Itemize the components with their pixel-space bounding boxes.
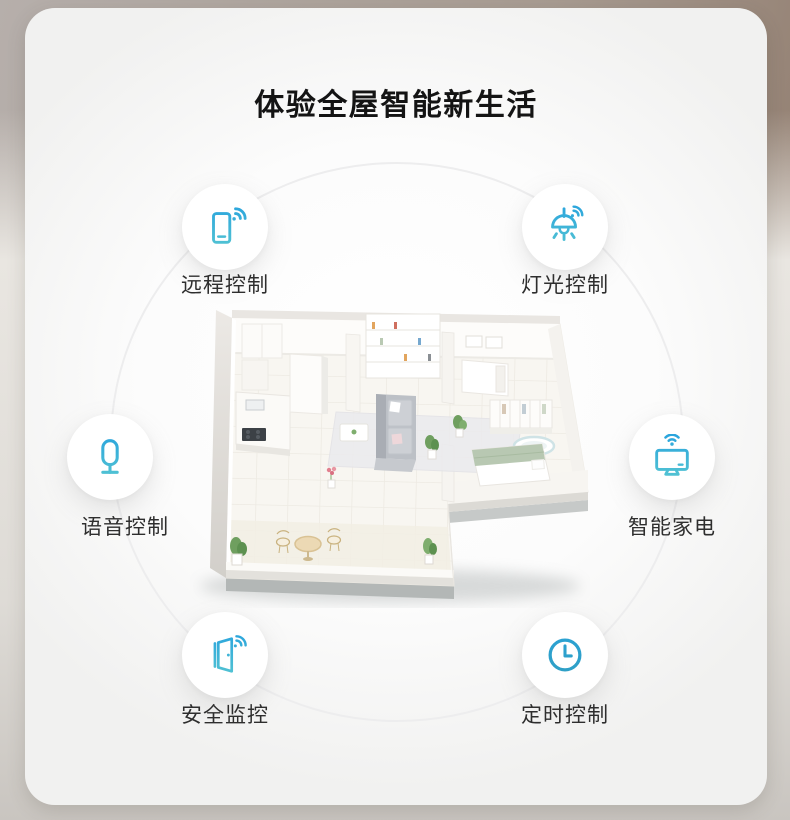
door-wifi-icon	[202, 632, 248, 678]
sofa	[374, 394, 416, 472]
light-control-circle	[522, 184, 608, 270]
floor-plan-illustration	[190, 296, 590, 608]
feature-label-light: 灯光控制	[480, 269, 650, 299]
feature-label-remote: 远程控制	[140, 269, 310, 299]
cooktop	[242, 428, 266, 441]
remote-control-circle	[182, 184, 268, 270]
smart-home-promo-page: { "page": { "title": "体验全屋智能新生活" }, "fea…	[0, 0, 790, 820]
security-monitor-circle	[182, 612, 268, 698]
page-title: 体验全屋智能新生活	[25, 80, 767, 124]
feature-label-voice: 语音控制	[40, 511, 210, 541]
feature-label-security: 安全监控	[140, 699, 310, 729]
feature-label-appliance: 智能家电	[587, 511, 757, 541]
bookshelf	[366, 314, 440, 378]
content-card: 远程控制 灯光控制	[25, 8, 767, 805]
feature-label-timer: 定时控制	[480, 699, 650, 729]
clock-icon	[542, 632, 588, 678]
microphone-icon	[87, 434, 133, 480]
timer-control-circle	[522, 612, 608, 698]
phone-wifi-icon	[202, 204, 248, 250]
wardrobe	[490, 400, 552, 434]
pendant-lamp-wifi-icon	[542, 204, 588, 250]
smart-appliance-circle	[629, 414, 715, 500]
voice-control-circle	[67, 414, 153, 500]
tv-wifi-icon	[649, 434, 695, 480]
sink	[246, 400, 264, 410]
bed	[472, 444, 550, 486]
